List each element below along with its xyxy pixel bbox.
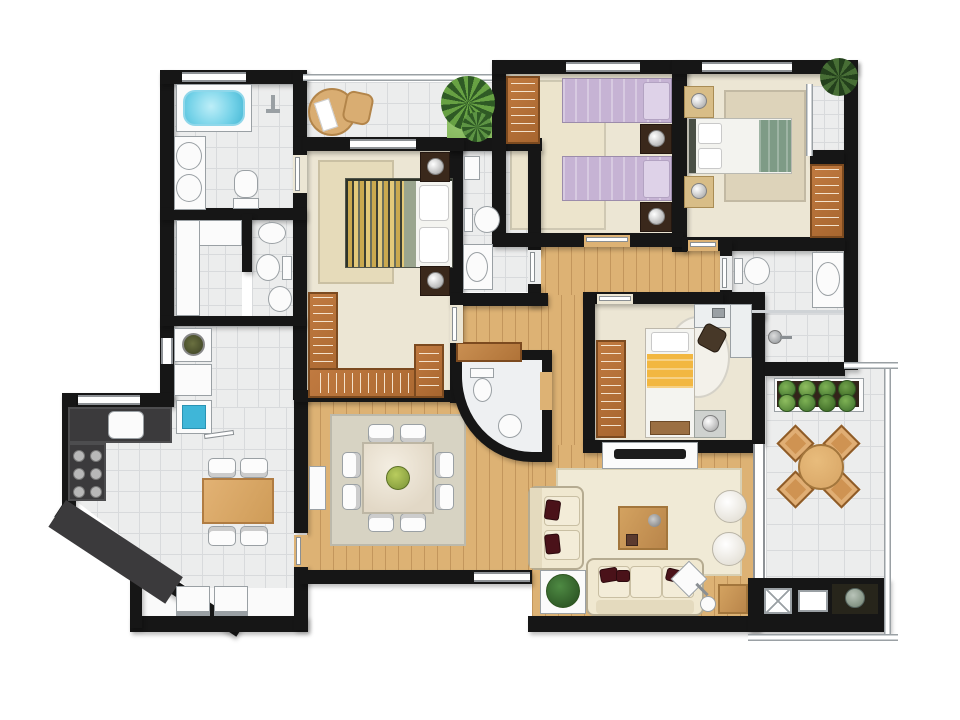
kids-wardrobe (596, 340, 626, 438)
hanger-rail (419, 349, 439, 393)
throw-pillow (616, 570, 630, 582)
floor-plan (0, 0, 960, 720)
plant-living (546, 574, 580, 608)
hanger-rail (511, 81, 535, 139)
plant-bedroom-3 (820, 58, 858, 96)
loveseat-back (530, 488, 542, 568)
wall (844, 60, 858, 370)
dining-chair (435, 452, 454, 478)
sideboard (309, 466, 326, 510)
door-leaf-kids-bedroom (599, 296, 631, 301)
kitchen-chair (208, 526, 236, 546)
terrace-rail-bottom (748, 634, 898, 641)
kitchen-table (202, 478, 274, 524)
tray-box (626, 534, 638, 546)
pillow (643, 82, 670, 120)
bath-sink-1 (176, 142, 202, 170)
table-lamp (648, 208, 665, 225)
vanity-sink (816, 262, 840, 296)
core-plant (845, 588, 865, 608)
window-kitchen (78, 395, 140, 405)
pillow (643, 160, 670, 198)
shower-arm (780, 336, 792, 339)
dining-chair (400, 513, 426, 532)
toilet-bowl (744, 257, 770, 285)
door-leaf-bedroom-3 (690, 242, 716, 247)
balconet-glass (806, 84, 813, 156)
door-leaf-master-bedroom (452, 307, 457, 341)
tray-bowl (648, 514, 661, 527)
side-table (718, 584, 748, 614)
pillow (651, 332, 689, 352)
palm-plant-small (462, 112, 492, 142)
footboard (650, 421, 690, 435)
twin-wardrobe (506, 76, 540, 144)
window-bathtub (182, 72, 246, 82)
toilet-tank (470, 368, 494, 378)
terrace-round-table (798, 444, 844, 490)
pouf (714, 490, 747, 523)
small-sink (464, 156, 480, 180)
wall (130, 616, 308, 632)
kitchen-chair (208, 458, 236, 478)
shaft-x-box (764, 588, 792, 614)
hall-wood-shelf (456, 342, 522, 362)
door-leaf-twin-bedroom (586, 237, 628, 242)
sliding-door-master-balcony (350, 139, 416, 149)
toilet-tank (464, 208, 473, 232)
tv (614, 449, 686, 459)
coffee-table (618, 506, 668, 550)
dining-chair (400, 424, 426, 443)
terrace-rail-right (884, 368, 891, 640)
bedroom-3-wardrobe (810, 164, 844, 238)
window-dining (474, 572, 530, 582)
toilet-bowl (473, 378, 492, 402)
sofa-back (596, 600, 694, 614)
toilet-tank (734, 258, 743, 284)
planter-bush (778, 394, 796, 412)
dining-chair (342, 452, 361, 478)
toilet-tank (233, 198, 259, 209)
stove-burner (73, 468, 85, 480)
dining-chair (435, 484, 454, 510)
freezer (214, 586, 248, 616)
bed-3 (688, 118, 792, 174)
table-lamp (691, 183, 707, 199)
kitchen-chair (240, 526, 268, 546)
kids-desk-return (730, 304, 752, 358)
throw-pillow (544, 499, 562, 521)
pillow (419, 185, 449, 221)
kids-bed (645, 328, 695, 438)
wc-bidet (268, 286, 292, 312)
stove-burner (90, 450, 102, 462)
wall (450, 293, 548, 306)
vanity-sink (466, 252, 488, 282)
washer-drum (182, 333, 205, 356)
throw-pillow (544, 533, 561, 554)
master-duvet-striped (348, 181, 404, 267)
wc-toilet-tank (282, 256, 292, 280)
wall (242, 214, 252, 272)
kitchen-sink (108, 411, 144, 439)
hanger-rail (601, 345, 621, 433)
laundry-tank (182, 405, 206, 429)
loveseat (528, 486, 584, 570)
master-bed (345, 178, 453, 268)
floor-lamp-base (700, 596, 716, 612)
dining-chair (368, 513, 394, 532)
pillow (698, 123, 722, 144)
centerpiece (386, 466, 410, 490)
planter-bush (838, 394, 856, 412)
table-lamp (702, 415, 719, 432)
dining-chair (342, 484, 361, 510)
wall (294, 398, 308, 533)
wc-sink (258, 222, 286, 244)
table-lamp (648, 130, 665, 147)
wc-toilet (256, 254, 280, 281)
stove-burner (90, 486, 102, 498)
wall (810, 150, 844, 164)
wall (752, 310, 765, 444)
pillow (419, 227, 449, 263)
dryer (174, 364, 212, 396)
hanger-rail (815, 169, 839, 233)
stove-burner (73, 450, 85, 462)
toilet-bowl (474, 206, 500, 233)
wall (528, 616, 760, 632)
closet-cabinet-left (176, 220, 200, 316)
round-sink (498, 414, 522, 438)
stove-burner (73, 486, 85, 498)
terrace-rail-top (844, 362, 898, 369)
dining-chair (368, 424, 394, 443)
kitchen-chair (240, 458, 268, 478)
seat-cushion (630, 566, 662, 598)
wall (765, 362, 845, 376)
wall-faucet-head (266, 109, 280, 113)
door-leaf-master-bath (295, 157, 300, 191)
planter-bush (798, 394, 816, 412)
pouf (712, 532, 746, 566)
door-leaf-bathroom-2 (530, 252, 535, 282)
bathtub (183, 90, 245, 126)
duct-box (798, 590, 828, 612)
twin-bed-2 (562, 156, 672, 201)
window-twin-bedroom (566, 62, 640, 72)
planter-bush (818, 394, 836, 412)
fridge (176, 586, 210, 616)
wall (160, 316, 306, 326)
toilet-bowl (234, 170, 258, 198)
twin-bed-1 (562, 78, 672, 123)
table-lamp (427, 272, 444, 289)
headboard (689, 119, 696, 173)
table-lamp (691, 93, 707, 109)
window-bedroom-3 (702, 62, 792, 72)
window-service (161, 338, 173, 364)
laptop (712, 308, 725, 318)
table-lamp (427, 158, 444, 175)
pillow (698, 148, 722, 169)
wall (583, 292, 595, 444)
floor-balconet (810, 86, 844, 156)
bath-sink-2 (176, 174, 202, 202)
sliding-door-terrace (753, 444, 765, 578)
yellow-blanket (647, 354, 693, 388)
door-leaf-bathroom-3 (722, 258, 727, 288)
stove-burner (90, 468, 102, 480)
master-duvet-band (404, 181, 416, 267)
door-leaf-kitchen-dining (296, 537, 301, 565)
green-blanket (759, 120, 791, 172)
powder-door-opening (540, 372, 552, 410)
master-closet-right (414, 344, 444, 398)
